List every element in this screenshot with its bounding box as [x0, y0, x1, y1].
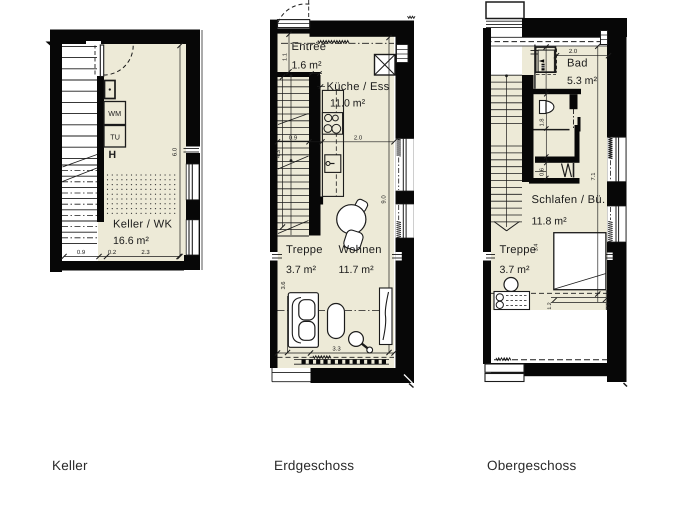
svg-text:0.2: 0.2: [108, 249, 117, 256]
svg-text:16.6 m²: 16.6 m²: [113, 235, 149, 247]
svg-text:5.3 m²: 5.3 m²: [567, 75, 597, 87]
svg-text:0.6: 0.6: [539, 168, 546, 176]
svg-text:Obergeschoss: Obergeschoss: [487, 458, 576, 473]
svg-text:11.8 m²: 11.8 m²: [532, 215, 568, 227]
svg-text:11.0 m²: 11.0 m²: [330, 98, 366, 110]
svg-text:2.0: 2.0: [354, 134, 363, 141]
svg-text:3.4: 3.4: [534, 244, 540, 252]
svg-text:1.8: 1.8: [539, 118, 546, 126]
svg-text:1.1: 1.1: [283, 53, 289, 61]
svg-text:Keller: Keller: [52, 458, 88, 473]
svg-text:Bad: Bad: [567, 57, 588, 69]
svg-text:0.9: 0.9: [77, 249, 86, 256]
svg-text:Schlafen / Bü.: Schlafen / Bü.: [532, 194, 606, 206]
svg-text:H: H: [109, 149, 117, 161]
svg-text:6.0: 6.0: [172, 147, 179, 156]
svg-text:TU: TU: [110, 133, 120, 142]
svg-text:Treppe: Treppe: [286, 244, 323, 256]
svg-text:Erdgeschoss: Erdgeschoss: [274, 458, 354, 473]
svg-text:3.7 m²: 3.7 m²: [286, 264, 316, 276]
svg-text:2.0: 2.0: [569, 48, 578, 55]
svg-text:1.6 m²: 1.6 m²: [292, 60, 322, 72]
svg-text:0.9: 0.9: [606, 302, 612, 309]
svg-text:3.6: 3.6: [280, 281, 287, 289]
svg-text:Küche / Ess: Küche / Ess: [327, 81, 390, 93]
svg-text:Wohnen: Wohnen: [339, 244, 382, 256]
svg-text:11.7 m²: 11.7 m²: [339, 264, 375, 276]
svg-text:3.3: 3.3: [332, 346, 341, 353]
svg-text:2.3: 2.3: [141, 249, 150, 256]
svg-text:0.9: 0.9: [289, 134, 298, 141]
svg-text:4.3: 4.3: [275, 150, 282, 158]
svg-text:9.0: 9.0: [381, 195, 388, 204]
svg-text:1.2: 1.2: [547, 302, 553, 309]
svg-text:7.1: 7.1: [591, 172, 597, 180]
svg-text:Treppe: Treppe: [500, 244, 537, 256]
svg-text:Keller / WK: Keller / WK: [113, 218, 172, 230]
svg-text:Entrée: Entrée: [292, 41, 327, 53]
svg-text:WM: WM: [108, 109, 121, 118]
svg-text:3.7 m²: 3.7 m²: [500, 264, 530, 276]
